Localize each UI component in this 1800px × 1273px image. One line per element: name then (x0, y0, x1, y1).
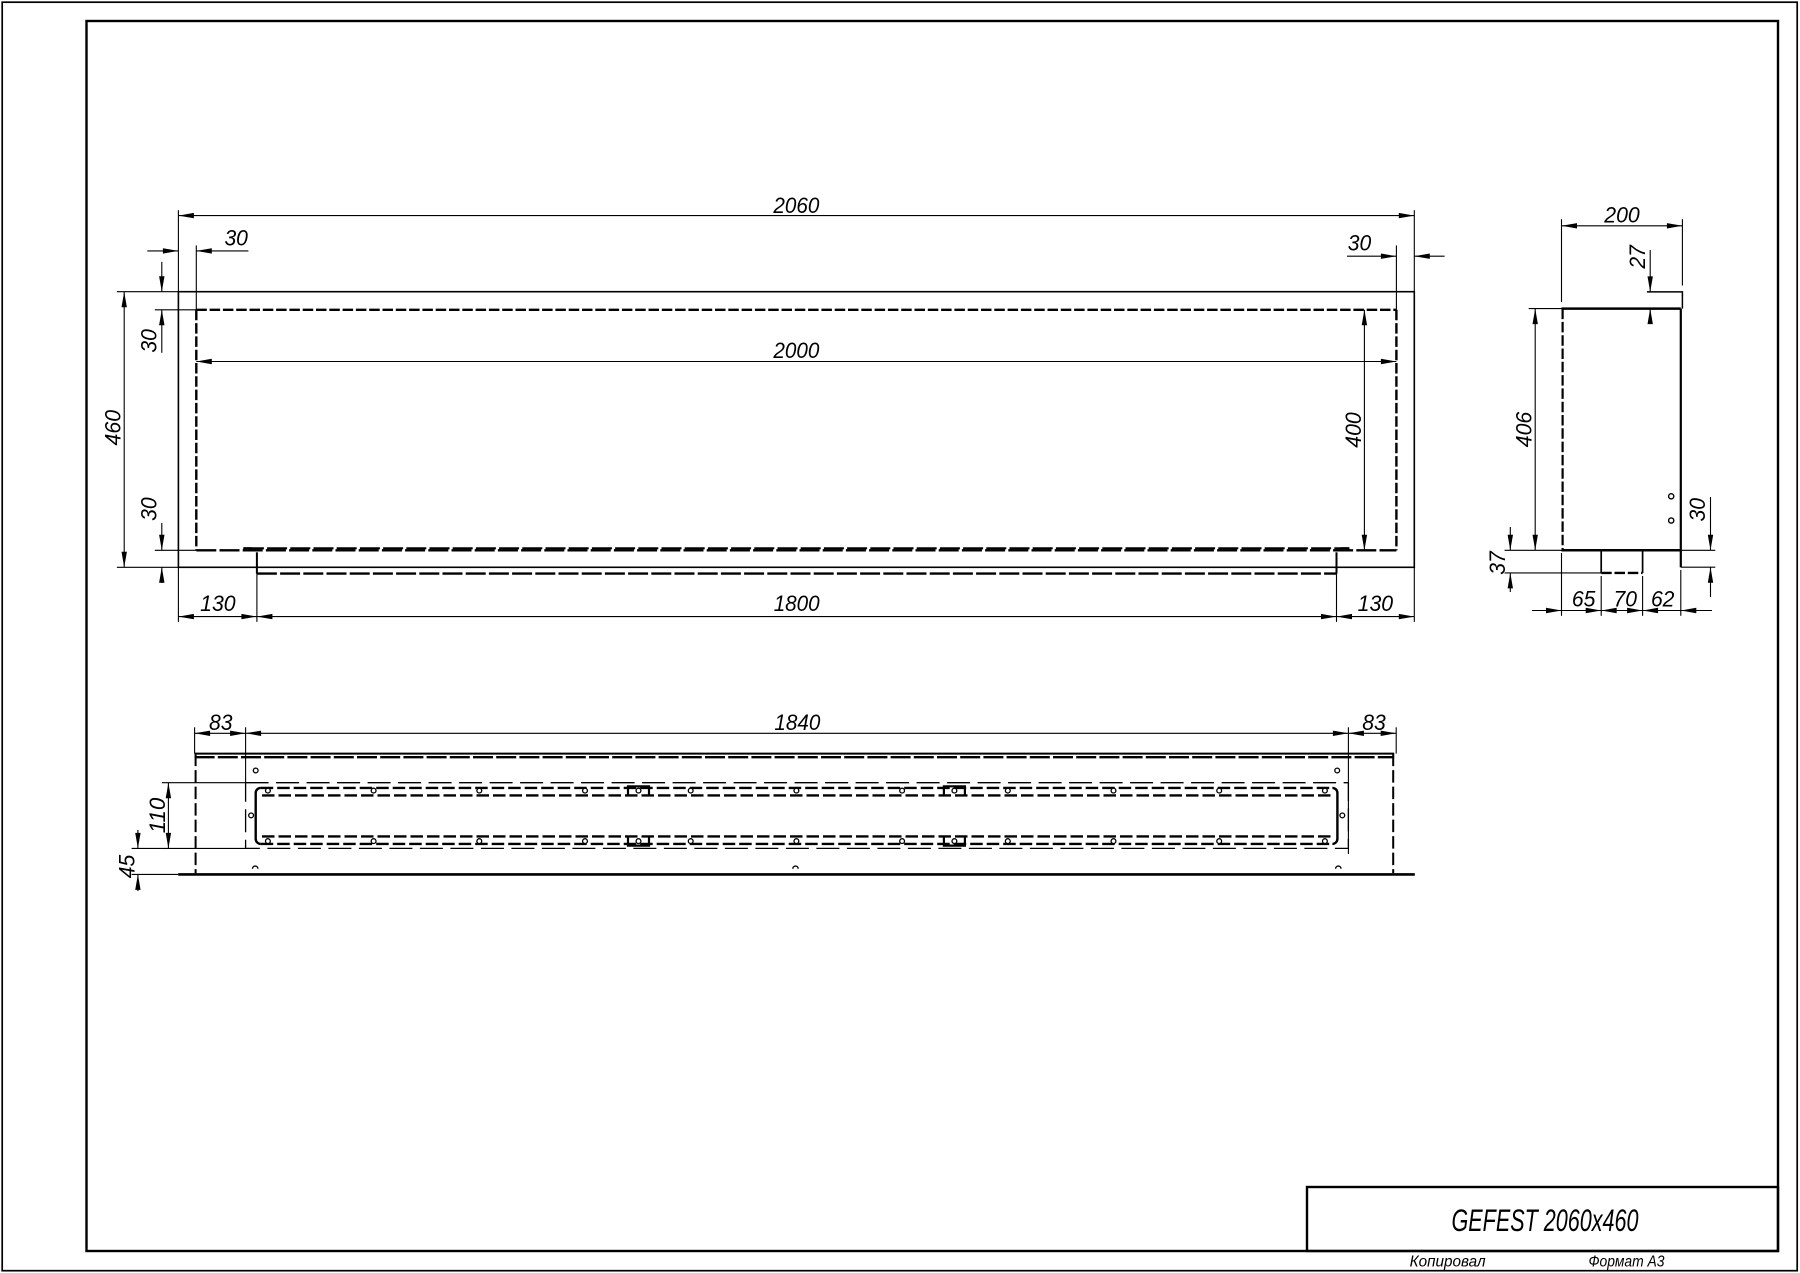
svg-text:406: 406 (1512, 411, 1537, 447)
svg-text:30: 30 (1348, 231, 1372, 256)
svg-text:30: 30 (137, 329, 162, 353)
svg-text:45: 45 (115, 854, 140, 878)
svg-text:400: 400 (1341, 412, 1366, 448)
svg-text:83: 83 (1362, 710, 1386, 735)
svg-text:30: 30 (1685, 498, 1710, 522)
svg-text:Формат А3: Формат А3 (1589, 1253, 1665, 1270)
svg-text:70: 70 (1614, 586, 1638, 611)
svg-text:110: 110 (145, 797, 170, 833)
svg-text:2000: 2000 (772, 338, 819, 363)
svg-text:GEFEST 2060x460: GEFEST 2060x460 (1452, 1202, 1639, 1238)
svg-text:200: 200 (1603, 202, 1640, 227)
svg-text:83: 83 (209, 710, 233, 735)
svg-text:1800: 1800 (774, 591, 820, 616)
svg-text:2060: 2060 (772, 193, 819, 218)
svg-text:30: 30 (137, 497, 162, 521)
svg-text:1840: 1840 (774, 710, 820, 735)
svg-text:30: 30 (224, 225, 248, 250)
svg-text:460: 460 (101, 409, 126, 445)
svg-text:130: 130 (200, 591, 236, 616)
svg-text:27: 27 (1625, 244, 1650, 270)
svg-text:65: 65 (1572, 586, 1596, 611)
svg-text:130: 130 (1358, 591, 1394, 616)
svg-text:37: 37 (1485, 550, 1510, 575)
svg-text:62: 62 (1651, 586, 1675, 611)
svg-text:Копировал: Копировал (1410, 1253, 1486, 1270)
